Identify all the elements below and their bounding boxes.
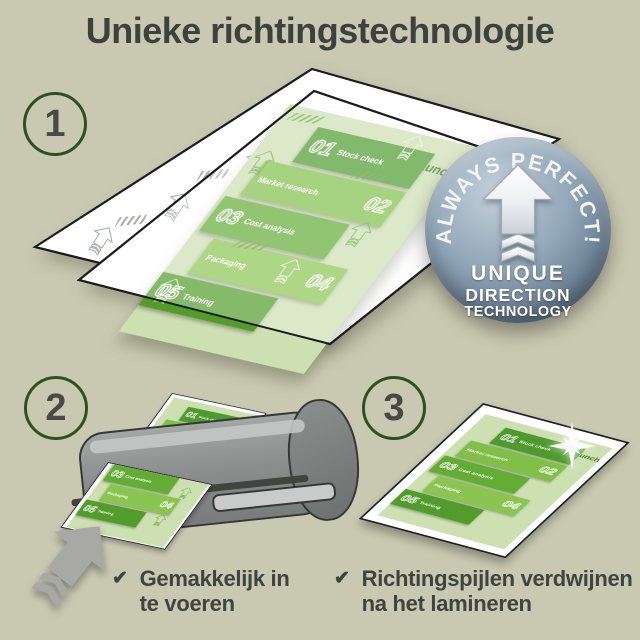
panel-label: Training	[97, 509, 115, 516]
panel-label: Market research	[256, 175, 322, 197]
panel-number: 04	[499, 499, 522, 511]
panel-label: Cost analysis	[124, 474, 153, 483]
caption-arrows-disappear-text: Richtingspijlen verdwijnen na het lamine…	[362, 566, 633, 617]
caption-arrows-disappear: ✔ Richtingspijlen verdwijnen na het lami…	[334, 566, 633, 617]
panel-label: Packaging	[204, 253, 249, 270]
caption-line: na het lamineren	[362, 591, 633, 616]
shine-sparkle-icon	[546, 420, 598, 472]
badge-arrow-icon	[476, 165, 560, 267]
panel-label: Training	[180, 292, 216, 307]
direction-arrow-watermark-icon	[150, 514, 168, 527]
check-icon: ✔	[334, 566, 350, 590]
caption-line: Richtingspijlen verdwijnen	[362, 566, 633, 591]
panel-label: Cost analysis	[242, 217, 298, 236]
brand-watermark	[286, 113, 325, 124]
panel-label: Packaging	[433, 483, 463, 494]
panel-label: Stock check	[335, 148, 386, 166]
caption-line: Gemakkelijk in	[140, 566, 290, 591]
panel-number: 01	[305, 137, 340, 159]
caption-line: te voeren	[140, 591, 290, 616]
panel-number: 04	[158, 500, 175, 510]
badge-line-unique: UNIQUE	[425, 263, 611, 286]
panel-number: 02	[359, 195, 394, 217]
panel-number: 04	[301, 272, 336, 294]
panel-label: Packaging	[107, 491, 130, 499]
badge-line-direction: DIRECTION	[425, 286, 611, 305]
panel-label: Training	[418, 501, 442, 510]
panel-number: 03	[211, 206, 246, 228]
infographic: Unieke richtingstechnologie 1 2 3 Launch…	[0, 0, 640, 640]
panel-label: Market research	[465, 448, 510, 462]
check-icon: ✔	[112, 566, 128, 590]
panel-number: 05	[81, 504, 98, 514]
panel-label: Cost analysis	[457, 467, 495, 480]
badge-text: UNIQUE DIRECTION TECHNOLOGY	[425, 263, 611, 320]
panel-number: 03	[109, 469, 126, 479]
caption-easy-feed-text: Gemakkelijk in te voeren	[140, 566, 290, 617]
badge-line-technology: TECHNOLOGY	[425, 305, 611, 321]
direction-arrow-watermark-icon	[176, 487, 194, 500]
always-perfect-badge: ALWAYS PERFECT! UNIQUE DIRECTION TECHNOL…	[425, 137, 611, 323]
caption-easy-feed: ✔ Gemakkelijk in te voeren	[112, 566, 290, 617]
